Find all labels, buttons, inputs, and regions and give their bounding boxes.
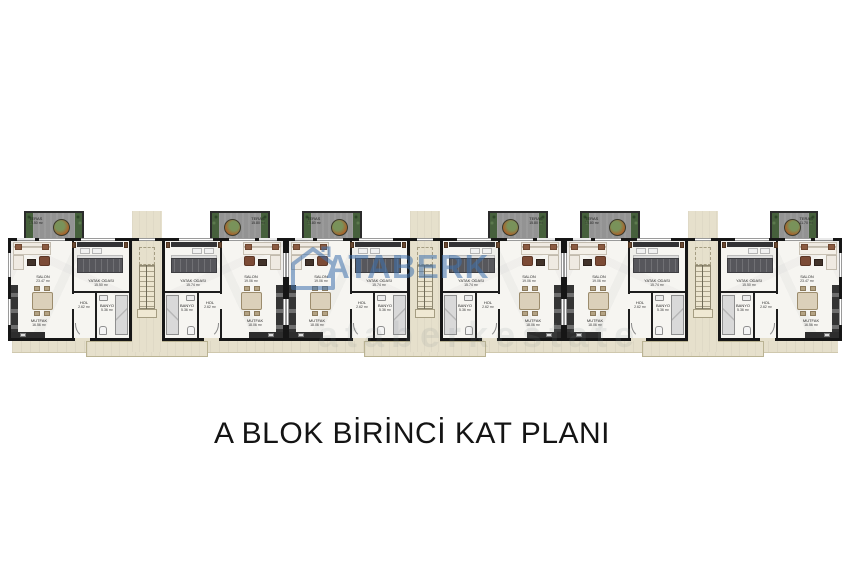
room-label-teras: TERAS 15.80 m² [251,216,265,225]
stair-rail [702,265,703,309]
shower [671,295,684,335]
bed-headboard [727,242,773,247]
pillow [636,248,646,254]
kitchen-sink [20,333,26,337]
toilet [377,326,385,335]
terrace-door [259,238,277,241]
room-label-hol: HOL 2.62 m² [78,300,90,310]
nightstand [402,242,406,248]
kitchen-counter [832,285,839,338]
shower [393,295,406,335]
bathroom-sink [377,295,386,301]
sofa-cushion [272,244,279,250]
nightstand [680,242,684,248]
interior-wall [197,291,199,338]
pillow [192,248,202,254]
dining-table [797,292,818,310]
dining-chair [810,311,816,316]
room-label-hol: HOL 2.62 m² [634,300,646,310]
stair-landing [415,309,435,318]
kitchen-counter [567,332,601,338]
nightstand [350,242,354,248]
pillow [80,248,90,254]
kitchen-counter [289,332,323,338]
dining-chair [44,286,50,291]
room-label-mutfak: MUTFAK 16.56 m² [31,318,47,328]
bed [633,242,679,273]
sofa-chaise [548,255,559,270]
room-label-salon: SALON 19.06 m² [522,274,536,284]
dining-chair [522,286,528,291]
interior-wall [350,309,352,338]
window [81,238,115,241]
unit-body: SALON 19.06 m² MUTFAK 18.06 m² YATAK ODA… [286,238,410,341]
sofa-chaise [291,255,302,270]
staircase [695,265,711,309]
interior-wall [628,241,630,294]
plant-strip [353,213,360,239]
terrace-door [573,238,591,241]
interior-wall [628,291,685,293]
room-label-mutfak: MUTFAK 18.06 m² [309,318,325,328]
plant-decor-icon [784,219,801,236]
bed-headboard [77,242,123,247]
sofa-cushion [828,244,835,250]
bed-blanket [77,258,123,273]
toilet [465,326,473,335]
window [417,238,433,241]
dining-chair [600,286,606,291]
bathroom-sink [464,295,473,301]
stairwell [132,205,162,357]
room-label-banyo: BANYO 5.36 m² [180,303,194,313]
room-label-teras: TERAS 15.50 m² [29,216,43,225]
interior-wall [475,291,477,338]
toilet [99,326,107,335]
sofa-cushion [42,244,49,250]
nightstand [496,242,500,248]
window [8,253,11,277]
dining-table [588,292,609,310]
entry-door-swing [353,323,369,339]
stair-rail [424,265,425,309]
nightstand [628,242,632,248]
dining-chair [322,286,328,291]
pillow [358,248,368,254]
nightstand [72,242,76,248]
stair-rail [146,265,147,309]
terrace: TERAS 15.80 m² [302,211,362,241]
room-label-banyo: BANYO 5.36 m² [100,303,114,313]
plant-decor-icon [502,219,519,236]
dining-chair [312,311,318,316]
room-label-banyo: BANYO 5.36 m² [656,303,670,313]
toilet [743,326,751,335]
bed-blanket [633,258,679,273]
window [39,238,65,241]
terrace-door [815,238,833,241]
interior-wall [628,309,630,338]
unit-body: SALON 19.06 m² MUTFAK 18.06 m² YATAK ODA… [162,238,286,341]
tv-cabinet [258,259,267,266]
interior-wall [72,309,74,338]
window [457,238,491,241]
room-label-banyo: BANYO 5.36 m² [736,303,750,313]
stair-landing [693,309,713,318]
dining-chair [244,286,250,291]
kitchen-counter [11,285,18,338]
plant-strip [772,213,779,239]
window [839,299,842,325]
room-label-salon: SALON 23.47 m² [36,274,50,284]
dining-chair [312,286,318,291]
kitchen-counter [289,285,296,338]
bed-headboard [171,242,217,247]
dining-table [32,292,53,310]
unit-body: SALON 19.06 m² MUTFAK 18.06 m² YATAK ODA… [440,238,564,341]
pillow [760,248,770,254]
entry-door-swing [631,323,647,339]
bed-blanket [171,258,217,273]
kitchen-sink [268,333,274,337]
sofa-cushion [571,244,578,250]
toilet [655,326,663,335]
kitchen-counter [276,285,283,338]
stair-void [695,247,711,265]
sofa-cushion [245,244,252,250]
interior-wall [721,291,778,293]
sofa-cushion [550,244,557,250]
nightstand [218,242,222,248]
armchair [595,256,606,266]
dining-table [519,292,540,310]
room-label-yatak-odasi: YATAK ODASI 15.74 m² [180,278,206,288]
bed [77,242,123,273]
kitchen-counter [249,332,283,338]
dining-chair [532,311,538,316]
interior-wall [373,291,375,338]
bed [449,242,495,273]
room-label-teras: TERAS 15.80 m² [307,216,321,225]
dining-table [310,292,331,310]
room-label-mutfak: MUTFAK 18.06 m² [525,318,541,328]
armchair [39,256,50,266]
dining-chair [800,311,806,316]
tv-cabinet [814,259,823,266]
dining-chair [34,286,40,291]
apartment-unit-A3: TERAS 15.80 m² [286,205,410,357]
stair-void [139,247,155,265]
room-label-yatak-odasi: YATAK ODASI 15.74 m² [458,278,484,288]
room-label-hol: HOL 2.62 m² [204,300,216,310]
kitchen-counter [554,285,561,338]
interior-wall [443,291,500,293]
sofa-cushion [801,244,808,250]
dining-table [241,292,262,310]
window [286,253,289,277]
room-label-salon: SALON 19.06 m² [314,274,328,284]
armchair [800,256,811,266]
sofa-cushion [598,244,605,250]
bathroom-sink [742,295,751,301]
bed-headboard [449,242,495,247]
shower [444,295,457,335]
room-label-yatak-odasi: YATAK ODASI 15.50 m² [88,278,114,288]
terrace-door [537,238,555,241]
room-label-banyo: BANYO 5.36 m² [458,303,472,313]
kitchen-sink [824,333,830,337]
stair-landing [137,309,157,318]
dining-chair [810,286,816,291]
unit-body: SALON 23.47 m² MUTFAK 16.56 m² YATAK ODA… [8,238,132,341]
window [317,238,343,241]
terrace-door [295,238,313,241]
apartment-unit-A5: TERAS 15.80 m² [564,205,688,357]
kitchen-counter [11,332,45,338]
tv-cabinet [305,259,314,266]
bed-blanket [355,258,401,273]
terrace: TERAS 15.80 m² [488,211,548,241]
dining-chair [590,286,596,291]
apartment-unit-A6: TERAS 11.70 m² [718,205,842,357]
plan-title: A BLOK BİRİNCİ KAT PLANI [214,417,610,451]
plant-decor-icon [331,219,348,236]
interior-wall [498,309,500,338]
terrace: TERAS 15.80 m² [580,211,640,241]
interior-wall [776,309,778,338]
plant-strip [75,213,82,239]
room-label-salon: SALON 19.06 m² [244,274,258,284]
kitchen-sink [298,333,304,337]
toilet [187,326,195,335]
bathroom-sink [655,295,664,301]
pillow [748,248,758,254]
room-label-mutfak: MUTFAK 16.56 m² [803,318,819,328]
window [139,238,155,241]
dining-chair [590,311,596,316]
shower [722,295,735,335]
dining-chair [800,286,806,291]
stairwell [688,205,718,357]
unit-pair: TERAS 15.80 m² [286,205,564,357]
window [229,238,255,241]
sofa-chaise [826,255,837,270]
window [695,238,711,241]
armchair [317,256,328,266]
sofa-cushion [523,244,530,250]
plant-strip [490,213,497,239]
terrace: TERAS 15.80 m² [210,211,270,241]
kitchen-counter [805,332,839,338]
bathroom-sink [99,295,108,301]
interior-wall [72,291,129,293]
unit-body: SALON 19.06 m² MUTFAK 18.06 m² YATAK ODA… [564,238,688,341]
nightstand [124,242,128,248]
room-label-yatak-odasi: YATAK ODASI 15.74 m² [644,278,670,288]
tv-cabinet [583,259,592,266]
nightstand [166,242,170,248]
pillow [204,248,214,254]
interior-wall [776,241,778,294]
room-label-salon: SALON 23.47 m² [800,274,814,284]
interior-wall [95,291,97,338]
plan-row: TERAS 15.50 m² [8,205,842,357]
pillow [482,248,492,254]
plant-decor-icon [609,219,626,236]
interior-wall [350,291,407,293]
dining-chair [532,286,538,291]
tv-cabinet [27,259,36,266]
dining-chair [322,311,328,316]
entry-door-swing [75,323,91,339]
room-label-banyo: BANYO 5.36 m² [378,303,392,313]
window [839,253,842,277]
interior-wall [651,291,653,338]
stair-void [417,247,433,265]
bed [355,242,401,273]
shower [115,295,128,335]
dining-chair [34,311,40,316]
nightstand [722,242,726,248]
dining-chair [244,311,250,316]
sofa-cushion [15,244,22,250]
pillow [370,248,380,254]
room-label-mutfak: MUTFAK 18.06 m² [587,318,603,328]
room-label-teras: TERAS 15.80 m² [529,216,543,225]
terrace: TERAS 11.70 m² [770,211,818,241]
bathroom-sink [186,295,195,301]
sofa-chaise [569,255,580,270]
room-label-hol: HOL 2.62 m² [760,300,772,310]
interior-wall [498,241,500,294]
sofa-chaise [13,255,24,270]
room-label-mutfak: MUTFAK 18.06 m² [247,318,263,328]
sofa-chaise [270,255,281,270]
room-label-yatak-odasi: YATAK ODASI 15.74 m² [366,278,392,288]
dining-chair [44,311,50,316]
pillow [92,248,102,254]
bed [727,242,773,273]
armchair [244,256,255,266]
room-label-yatak-odasi: YATAK ODASI 15.50 m² [736,278,762,288]
bed-blanket [727,258,773,273]
window [735,238,769,241]
nightstand [444,242,448,248]
dining-chair [600,311,606,316]
apartment-unit-A2: TERAS 15.80 m² [162,205,286,357]
bed [171,242,217,273]
plant-strip [631,213,638,239]
pillow [470,248,480,254]
terrace: TERAS 15.50 m² [24,211,84,241]
building-plan: TERAS 15.50 m² [8,205,842,357]
stairwell [410,205,440,357]
apartment-unit-A4: TERAS 15.80 m² [440,205,564,357]
window [595,238,621,241]
apartment-unit-A1: TERAS 15.50 m² [8,205,132,357]
window [507,238,533,241]
terrace-door [17,238,35,241]
nightstand [774,242,778,248]
bed-blanket [449,258,495,273]
plant-strip [212,213,219,239]
plant-decor-icon [224,219,241,236]
floor-plan-canvas: TERAS 15.50 m² [0,0,850,566]
unit-pair: TERAS 15.80 m² [564,205,842,357]
sofa-cushion [320,244,327,250]
interior-wall [220,309,222,338]
interior-wall [220,241,222,294]
room-label-teras: TERAS 15.80 m² [585,216,599,225]
room-label-teras: TERAS 11.70 m² [799,216,813,225]
room-label-hol: HOL 2.62 m² [482,300,494,310]
window [637,238,671,241]
kitchen-sink [546,333,552,337]
entry-door-swing [759,323,775,339]
unit-pair: TERAS 15.50 m² [8,205,286,357]
room-label-hol: HOL 2.62 m² [356,300,368,310]
interior-wall [350,241,352,294]
unit-body: SALON 23.47 m² MUTFAK 16.56 m² YATAK ODA… [718,238,842,341]
room-label-salon: SALON 19.06 m² [592,274,606,284]
interior-wall [165,291,222,293]
shower [166,295,179,335]
dining-chair [522,311,528,316]
bed-headboard [355,242,401,247]
armchair [522,256,533,266]
pillow [648,248,658,254]
staircase [417,265,433,309]
dining-chair [254,286,260,291]
window [359,238,393,241]
tv-cabinet [536,259,545,266]
bed-headboard [633,242,679,247]
sofa-cushion [293,244,300,250]
entry-door-swing [203,323,219,339]
plant-decor-icon [53,219,70,236]
window [785,238,811,241]
kitchen-counter [567,285,574,338]
staircase [139,265,155,309]
dining-chair [254,311,260,316]
kitchen-sink [576,333,582,337]
interior-wall [753,291,755,338]
window [179,238,213,241]
window [564,253,567,277]
entry-door-swing [481,323,497,339]
kitchen-counter [527,332,561,338]
interior-wall [72,241,74,294]
